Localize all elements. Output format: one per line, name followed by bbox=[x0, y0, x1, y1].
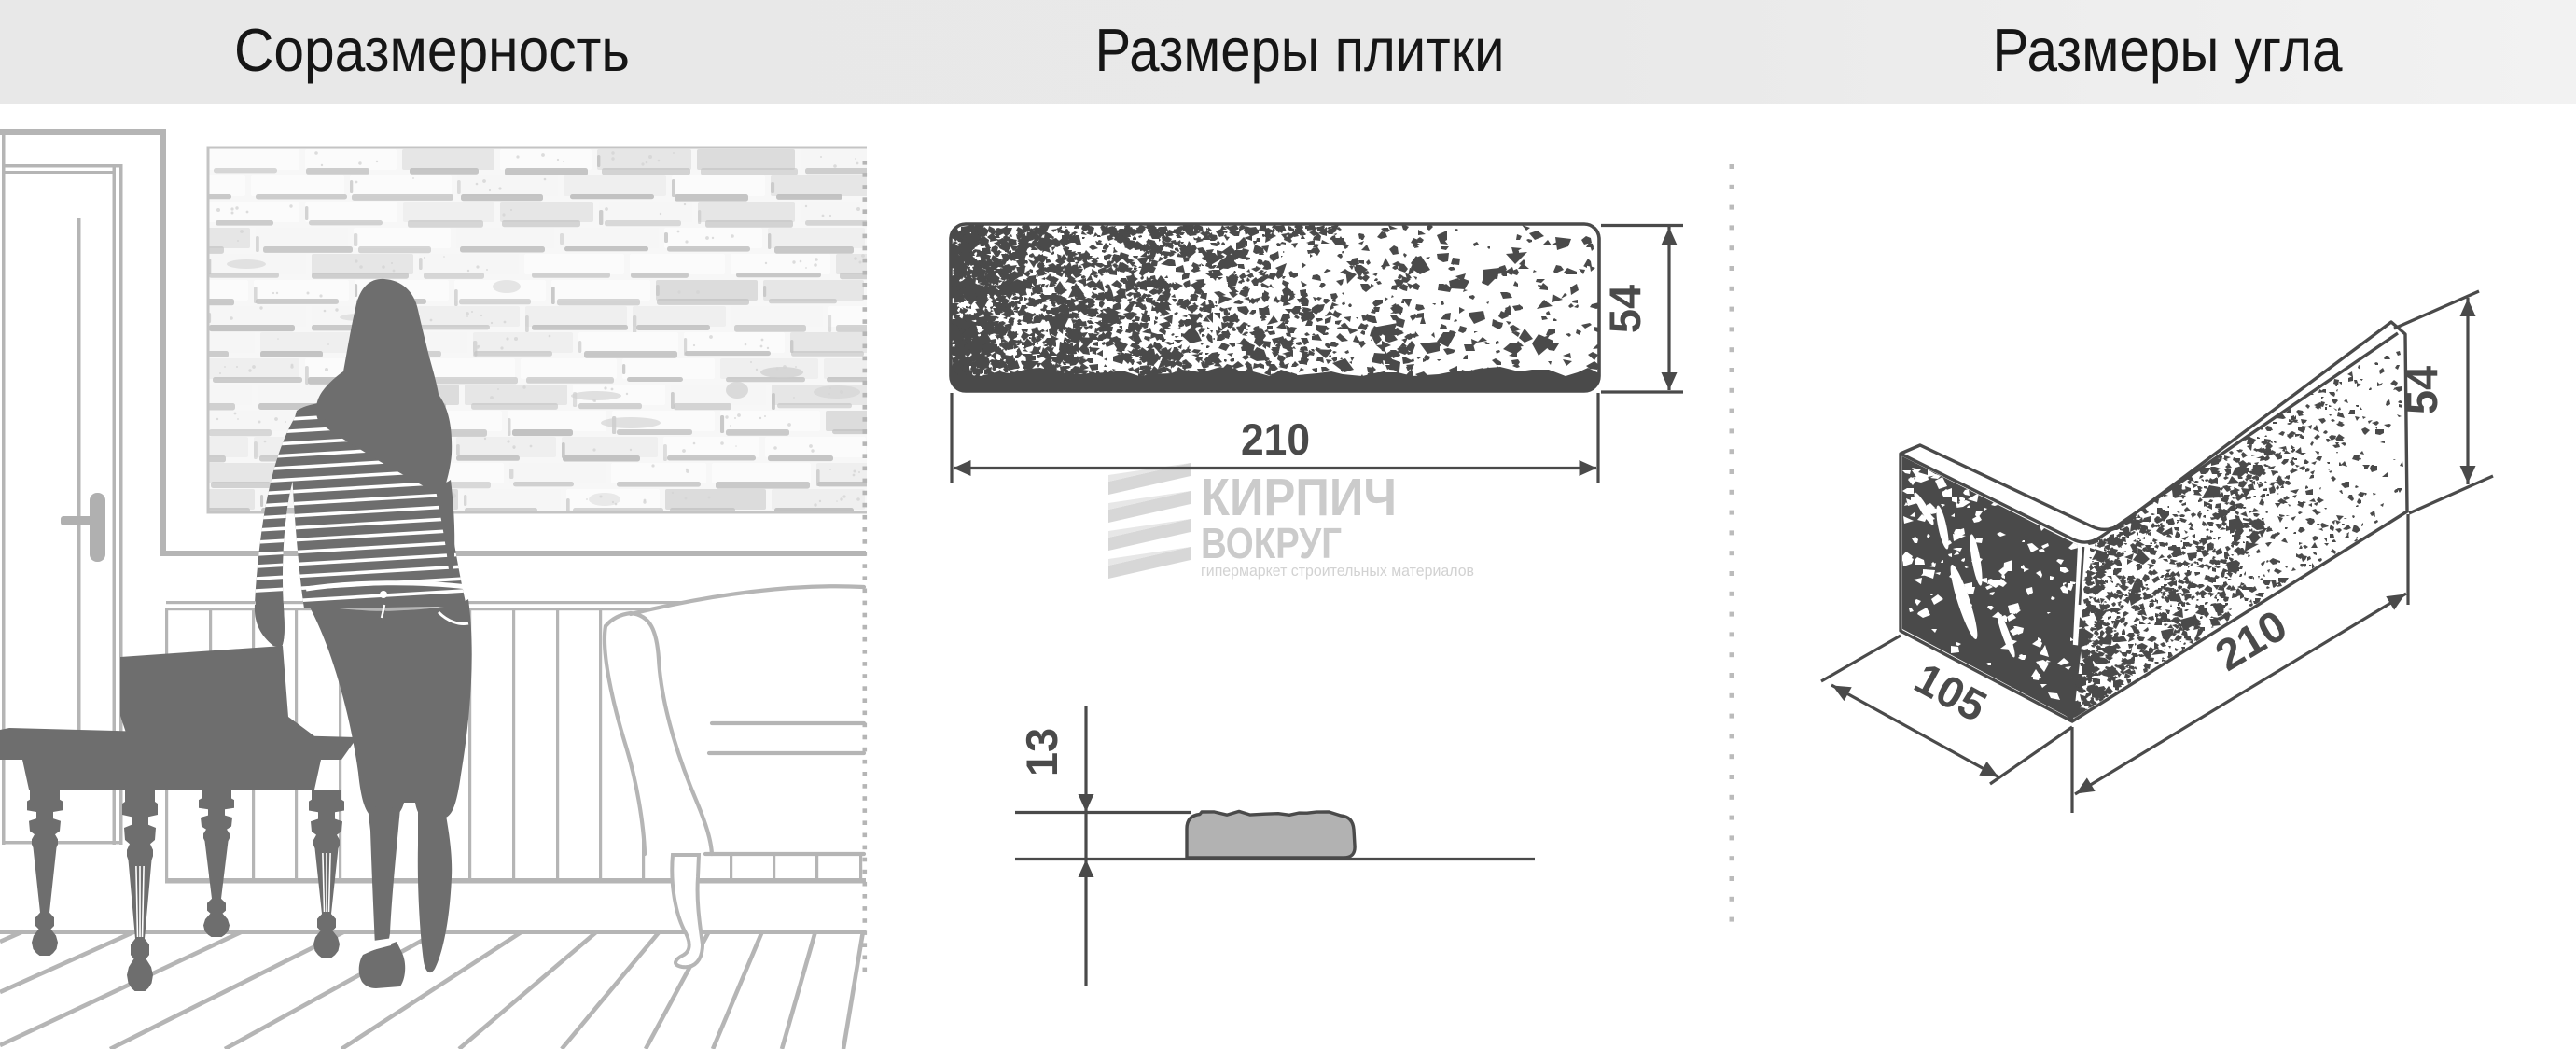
svg-text:Размеры плитки: Размеры плитки bbox=[1095, 16, 1505, 84]
svg-text:54: 54 bbox=[1600, 285, 1650, 333]
svg-text:54: 54 bbox=[2397, 366, 2446, 414]
svg-text:гипермаркет строительных матер: гипермаркет строительных материалов bbox=[1201, 562, 1474, 580]
svg-text:210: 210 bbox=[1241, 414, 1310, 464]
svg-text:Размеры угла: Размеры угла bbox=[1993, 16, 2344, 84]
svg-text:13: 13 bbox=[1017, 728, 1066, 776]
svg-text:Соразмерность: Соразмерность bbox=[234, 16, 630, 84]
svg-text:ВОКРУГ: ВОКРУГ bbox=[1201, 519, 1342, 567]
